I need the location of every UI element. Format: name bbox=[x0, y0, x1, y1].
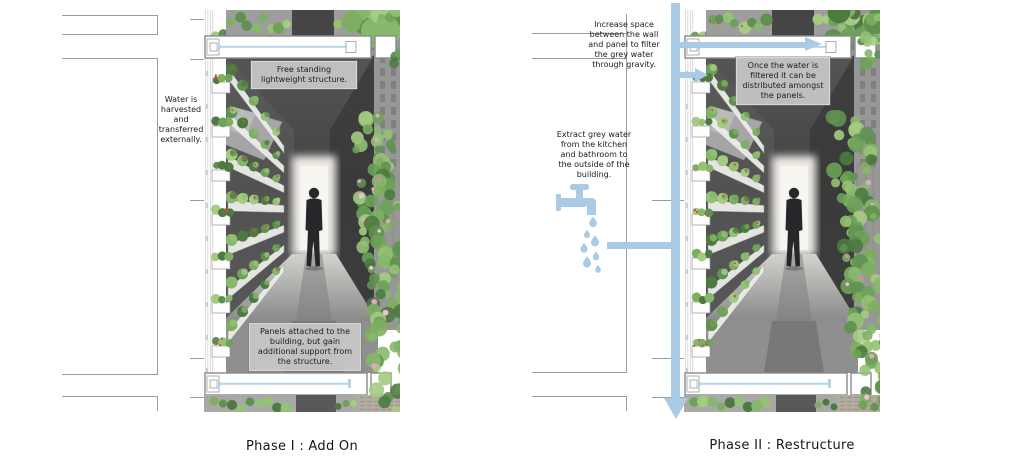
caption-phase-2: Phase II : Restructure bbox=[684, 438, 880, 453]
plan-outline-left-top bbox=[62, 15, 158, 35]
plan-outline-left-bottom bbox=[62, 396, 158, 411]
water-drops-icon bbox=[556, 177, 608, 277]
grey-water-vertical-pipe bbox=[671, 3, 680, 399]
caption-phase-1: Phase I : Add On bbox=[204, 439, 400, 454]
plan-outline-left-main bbox=[62, 58, 158, 375]
label-increase-space: Increase space between the wall and pane… bbox=[576, 20, 672, 70]
callout-panels-attached: Panels attached to the building, but gai… bbox=[249, 323, 361, 371]
label-water-harvested: Water is harvested and transferred exter… bbox=[147, 95, 215, 145]
panel-feed-arrow-shaft bbox=[680, 72, 696, 79]
right-arrow-icon bbox=[805, 37, 822, 51]
callout-once-filtered: Once the water is filtered it can be dis… bbox=[736, 57, 830, 105]
faucet-icon bbox=[556, 177, 608, 277]
down-arrow-icon bbox=[664, 398, 688, 419]
diagram-canvas: Water is harvested and transferred exter… bbox=[0, 0, 1024, 461]
plan-outline-right-bottom bbox=[532, 396, 627, 411]
right-arrow-icon bbox=[695, 68, 708, 82]
callout-free-standing: Free standing lightweight structure. bbox=[251, 61, 357, 89]
label-extract-grey-water: Extract grey water from the kitchen and … bbox=[538, 130, 650, 180]
grey-water-horizontal-pipe bbox=[607, 242, 672, 249]
filtered-water-arrow-shaft bbox=[680, 42, 806, 49]
